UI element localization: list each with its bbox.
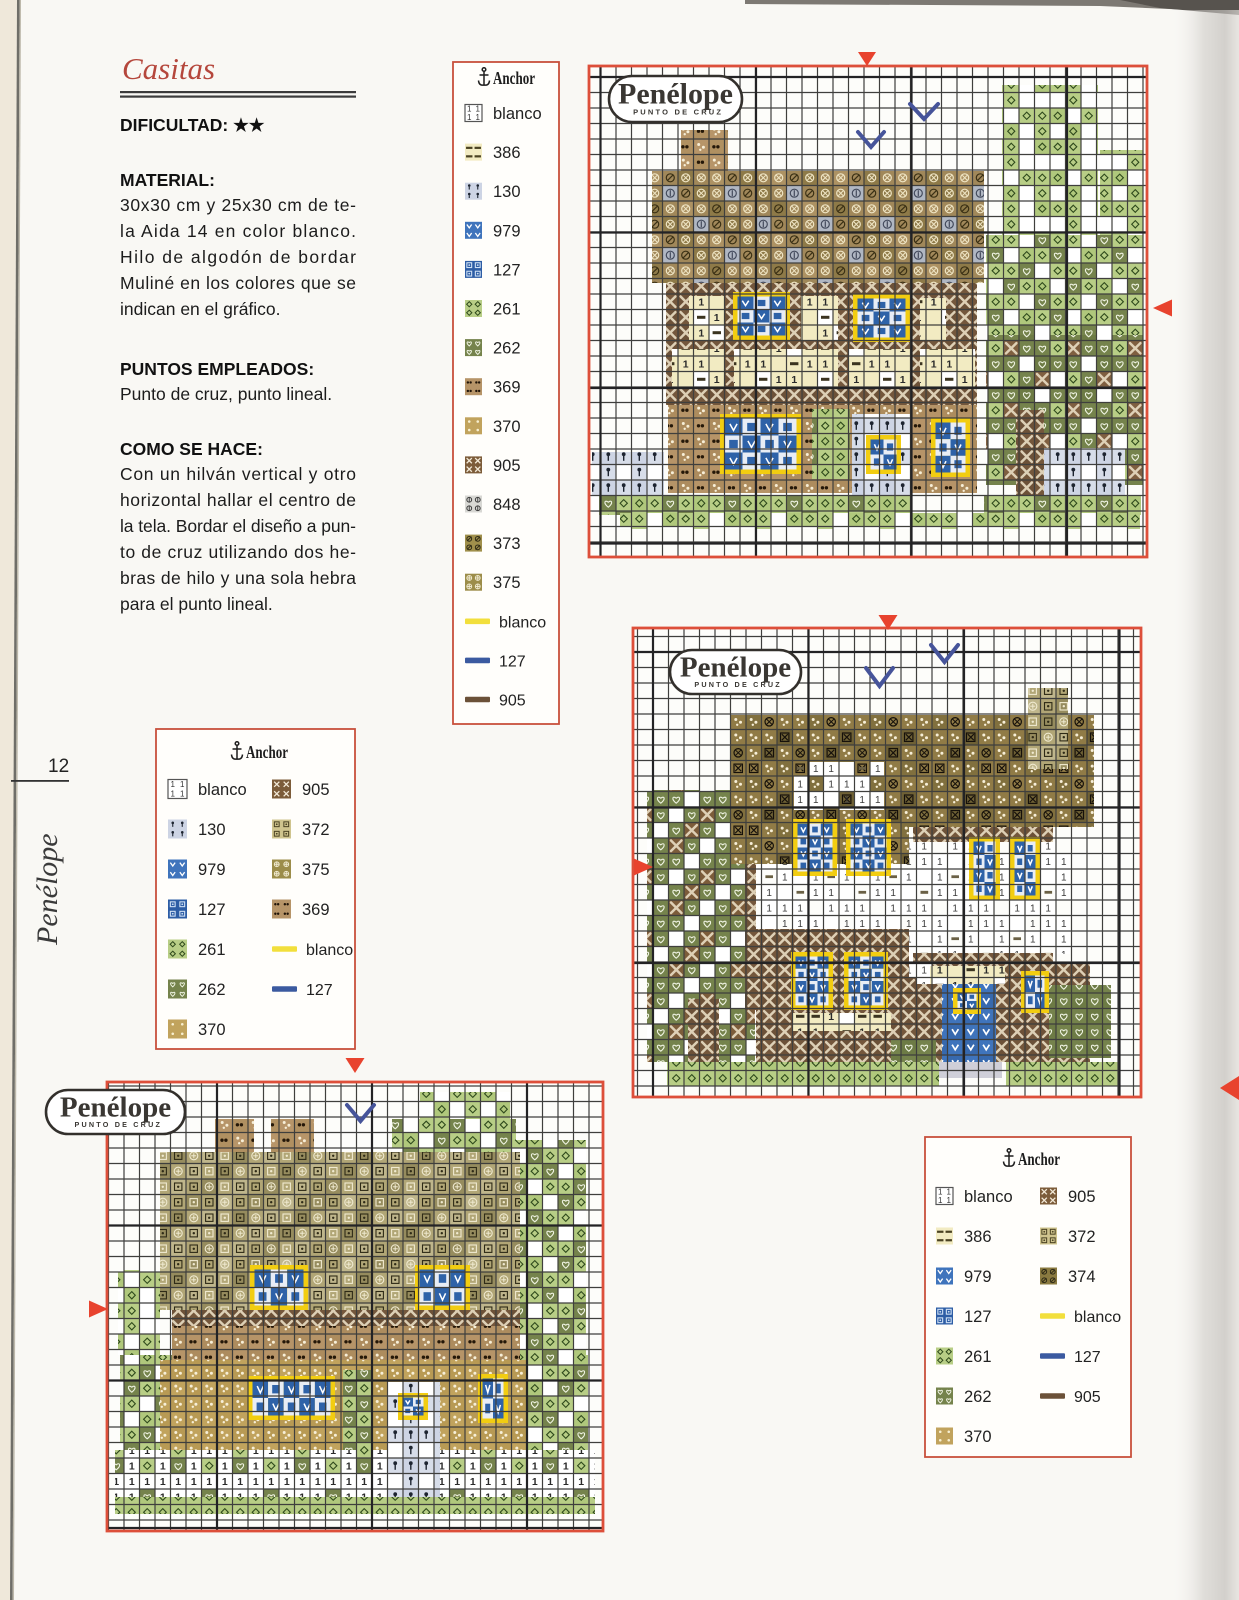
svg-text:Casitas: Casitas — [122, 51, 215, 86]
svg-text:127: 127 — [1074, 1349, 1101, 1366]
svg-text:1: 1 — [938, 1196, 943, 1205]
svg-text:Penélope: Penélope — [618, 78, 733, 111]
svg-text:261: 261 — [493, 301, 521, 319]
svg-text:para el punto lineal.: para el punto lineal. — [120, 594, 273, 614]
svg-text:Penélope: Penélope — [680, 651, 791, 683]
svg-text:blanco: blanco — [198, 781, 247, 799]
svg-text:386: 386 — [493, 144, 521, 162]
svg-text:indican en el gráfico.: indican en el gráfico. — [120, 299, 281, 319]
svg-text:372: 372 — [302, 821, 330, 839]
svg-text:905: 905 — [1068, 1188, 1096, 1206]
svg-text:130: 130 — [493, 183, 521, 201]
svg-text:905: 905 — [499, 693, 526, 710]
svg-text:la Aida 14 en color blanco.: la Aida 14 en color blanco. — [120, 221, 356, 241]
svg-text:905: 905 — [1074, 1389, 1101, 1406]
svg-text:369: 369 — [493, 379, 521, 397]
svg-text:blanco: blanco — [493, 105, 542, 123]
svg-text:375: 375 — [493, 574, 521, 592]
svg-text:PUNTOS EMPLEADOS:: PUNTOS EMPLEADOS: — [120, 359, 314, 379]
svg-text:Anchor: Anchor — [1018, 1149, 1060, 1169]
svg-text:Muliné en los colores que se: Muliné en los colores que se — [120, 273, 356, 293]
svg-text:374: 374 — [1068, 1268, 1096, 1286]
svg-text:979: 979 — [493, 222, 521, 240]
svg-text:369: 369 — [302, 901, 330, 919]
svg-text:1: 1 — [476, 113, 481, 122]
svg-text:375: 375 — [302, 861, 330, 879]
svg-text:373: 373 — [493, 535, 521, 553]
svg-text:386: 386 — [964, 1228, 992, 1246]
svg-text:blanco: blanco — [306, 942, 353, 959]
svg-text:blanco: blanco — [1074, 1309, 1121, 1326]
svg-text:Hilo de algodón de bordar: Hilo de algodón de bordar — [120, 247, 356, 267]
svg-text:PUNTO DE CRUZ: PUNTO DE CRUZ — [633, 108, 723, 117]
svg-text:261: 261 — [198, 941, 226, 959]
svg-text:979: 979 — [964, 1268, 992, 1286]
svg-text:DIFICULTAD: ★★: DIFICULTAD: ★★ — [120, 115, 265, 135]
svg-text:to de cruz utilizando dos he-: to de cruz utilizando dos he- — [120, 542, 356, 562]
svg-text:848: 848 — [493, 496, 521, 514]
svg-text:127: 127 — [306, 982, 333, 999]
svg-text:COMO SE HACE:: COMO SE HACE: — [120, 439, 263, 459]
svg-text:Punto de cruz, punto lineal.: Punto de cruz, punto lineal. — [120, 384, 332, 404]
svg-text:979: 979 — [198, 861, 226, 879]
svg-text:PUNTO DE CRUZ: PUNTO DE CRUZ — [74, 1120, 162, 1129]
svg-text:370: 370 — [198, 1021, 226, 1039]
svg-text:905: 905 — [302, 781, 330, 799]
svg-text:Penélope: Penélope — [60, 1091, 171, 1123]
svg-text:30x30 cm y 25x30 cm de te-: 30x30 cm y 25x30 cm de te- — [120, 195, 356, 215]
svg-text:blanco: blanco — [499, 614, 546, 631]
svg-text:1: 1 — [467, 113, 472, 122]
svg-text:370: 370 — [964, 1428, 992, 1446]
svg-text:MATERIAL:: MATERIAL: — [120, 170, 215, 190]
svg-text:Anchor: Anchor — [493, 68, 535, 88]
svg-text:127: 127 — [964, 1308, 992, 1326]
svg-text:130: 130 — [198, 821, 226, 839]
svg-text:Con un hilván vertical y otro: Con un hilván vertical y otro — [120, 464, 356, 484]
svg-text:Anchor: Anchor — [246, 742, 288, 762]
svg-text:905: 905 — [493, 457, 521, 475]
svg-text:1: 1 — [180, 790, 185, 799]
svg-text:372: 372 — [1068, 1228, 1096, 1246]
svg-text:370: 370 — [493, 418, 521, 436]
svg-text:262: 262 — [198, 981, 226, 999]
svg-text:262: 262 — [964, 1388, 992, 1406]
svg-text:1: 1 — [171, 780, 176, 789]
svg-text:127: 127 — [493, 261, 521, 279]
svg-text:blanco: blanco — [964, 1188, 1013, 1206]
svg-text:la tela. Bordar el diseño a pu: la tela. Bordar el diseño a pun- — [120, 516, 356, 536]
svg-text:1: 1 — [180, 780, 185, 789]
svg-text:1: 1 — [171, 790, 176, 799]
svg-text:12: 12 — [48, 756, 69, 777]
svg-text:127: 127 — [499, 653, 526, 670]
svg-text:261: 261 — [964, 1348, 992, 1366]
svg-text:Penélope: Penélope — [31, 833, 64, 946]
svg-text:PUNTO DE CRUZ: PUNTO DE CRUZ — [694, 680, 782, 689]
svg-text:bras de hilo y una sola hebra: bras de hilo y una sola hebra — [120, 568, 356, 588]
svg-text:262: 262 — [493, 340, 521, 358]
svg-text:horizontal hallar el centro de: horizontal hallar el centro de — [120, 490, 356, 510]
svg-text:127: 127 — [198, 901, 226, 919]
svg-text:1: 1 — [947, 1196, 952, 1205]
